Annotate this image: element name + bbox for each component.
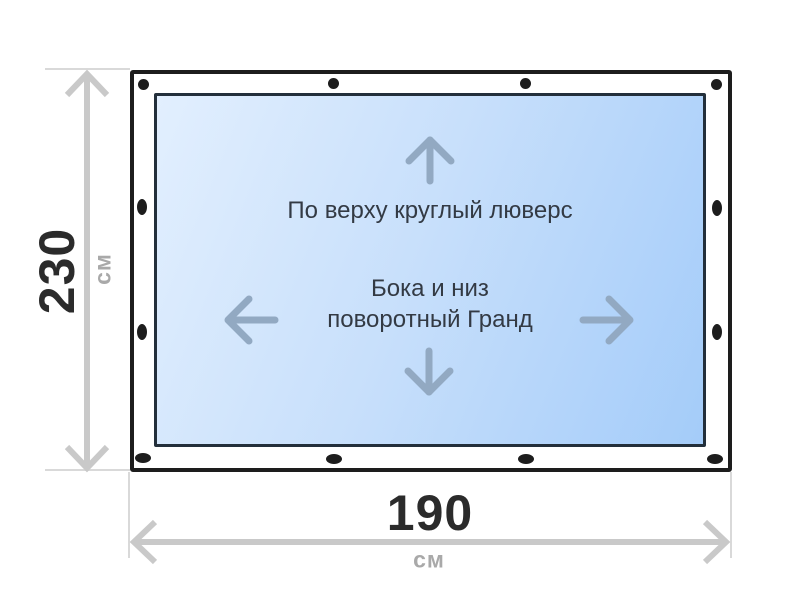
grommet-right-1-icon	[712, 200, 722, 216]
grommet-left-2-icon	[137, 324, 147, 340]
grommet-bottom-3-icon	[518, 454, 534, 464]
height-dimension-unit: см	[90, 253, 117, 285]
arrow-up-icon	[402, 131, 458, 185]
width-dimension-value: 190	[387, 484, 473, 542]
grommet-bottom-2-icon	[326, 454, 342, 464]
sides-bottom-note-line2: поворотный Гранд	[157, 304, 703, 335]
height-dimension-value: 230	[28, 228, 86, 314]
top-edge-note: По верху круглый люверс	[157, 197, 703, 225]
sides-bottom-note: Бока и низ поворотный Гранд	[157, 273, 703, 335]
grommet-left-1-icon	[137, 199, 147, 215]
tarp-frame: По верху круглый люверс Бока и низ повор…	[130, 70, 732, 472]
grommet-bottom-1-icon	[135, 453, 151, 463]
tarp-panel: По верху круглый люверс Бока и низ повор…	[154, 93, 706, 447]
arrow-down-icon	[401, 347, 457, 401]
width-dimension-unit: см	[413, 547, 445, 574]
grommet-right-2-icon	[712, 324, 722, 340]
sides-bottom-note-line1: Бока и низ	[157, 273, 703, 304]
grommet-top-1-icon	[138, 79, 149, 90]
tarpaulin-size-diagram: 230 см 190 см	[0, 0, 800, 600]
grommet-top-4-icon	[711, 79, 722, 90]
grommet-top-3-icon	[520, 78, 531, 89]
grommet-bottom-4-icon	[707, 454, 723, 464]
grommet-top-2-icon	[328, 78, 339, 89]
